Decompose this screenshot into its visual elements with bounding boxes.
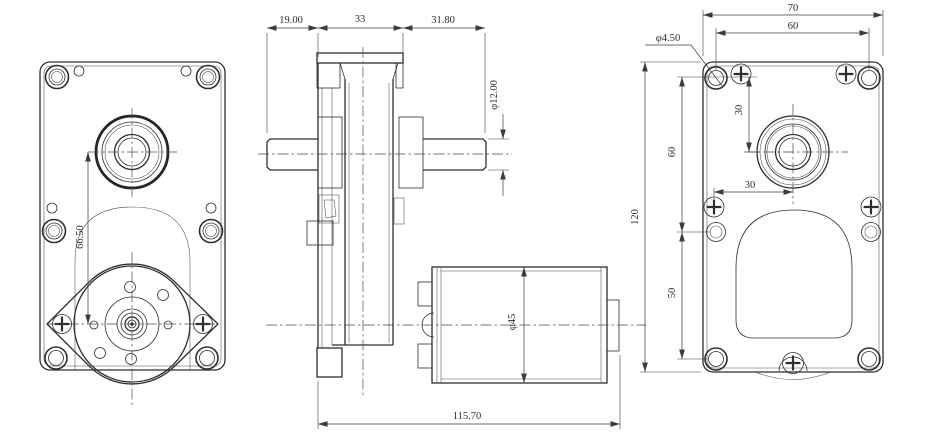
side-foot-block <box>317 348 342 377</box>
dim-offset-side: 30 <box>714 180 793 203</box>
dim-label-body-width: 33 <box>355 14 366 25</box>
dim-label-motor-dia: φ45 <box>507 314 518 331</box>
dim-label-shaft-dia: φ12.00 <box>489 80 500 110</box>
dim-hole-diameter-callout: φ4.50 <box>645 33 723 87</box>
front-gear-cavity-dome <box>75 207 190 369</box>
side-terminal-block <box>307 221 333 245</box>
back-output-boss <box>744 104 848 204</box>
front-housing-plate-inner <box>44 66 221 366</box>
dim-label-right-shaft: 31.80 <box>431 15 455 26</box>
drawing-canvas: 66.50 <box>0 0 926 441</box>
side-output-shaft <box>267 139 486 170</box>
dim-label-left-shaft: 19.00 <box>279 15 303 26</box>
dim-label-hole-span-v-lower: 50 <box>667 288 678 299</box>
dim-label-hole-span-v-upper: 60 <box>667 147 678 158</box>
dim-label-offset-top: 30 <box>734 105 745 116</box>
dim-overall-height: 120 <box>630 62 701 372</box>
side-right-hub <box>399 117 423 188</box>
back-mounting-holes <box>704 64 881 380</box>
front-view: 66.50 <box>40 62 225 408</box>
dim-label-overall-width: 70 <box>788 3 799 14</box>
dim-shaft-diameter: φ12.00 <box>488 80 509 196</box>
back-motor-recess-dome <box>736 210 852 338</box>
dim-label-hole-dia: φ4.50 <box>656 33 680 44</box>
dim-label-center-distance: 66.50 <box>75 225 86 249</box>
dim-center-distance: 66.50 <box>75 152 88 324</box>
side-motor-endcap <box>607 300 619 351</box>
dim-label-overall-height: 120 <box>630 209 641 225</box>
back-view: 70 60 φ4.50 30 60 <box>630 3 883 380</box>
front-output-boss <box>88 108 178 198</box>
side-left-hub <box>318 117 342 188</box>
dim-label-hole-span-h: 60 <box>788 21 799 32</box>
side-view: 19.00 33 31.80 φ12.00 φ45 115.70 <box>258 14 646 429</box>
front-motor-endcap <box>47 252 218 408</box>
dim-label-overall-length: 115.70 <box>453 411 482 422</box>
technical-drawing: 66.50 <box>0 0 926 441</box>
dim-label-offset-side: 30 <box>745 180 756 191</box>
side-gearbox-profile <box>307 53 423 377</box>
dim-hole-span-v-lower: 50 <box>667 232 707 359</box>
dim-top-row: 19.00 33 31.80 <box>267 14 485 133</box>
